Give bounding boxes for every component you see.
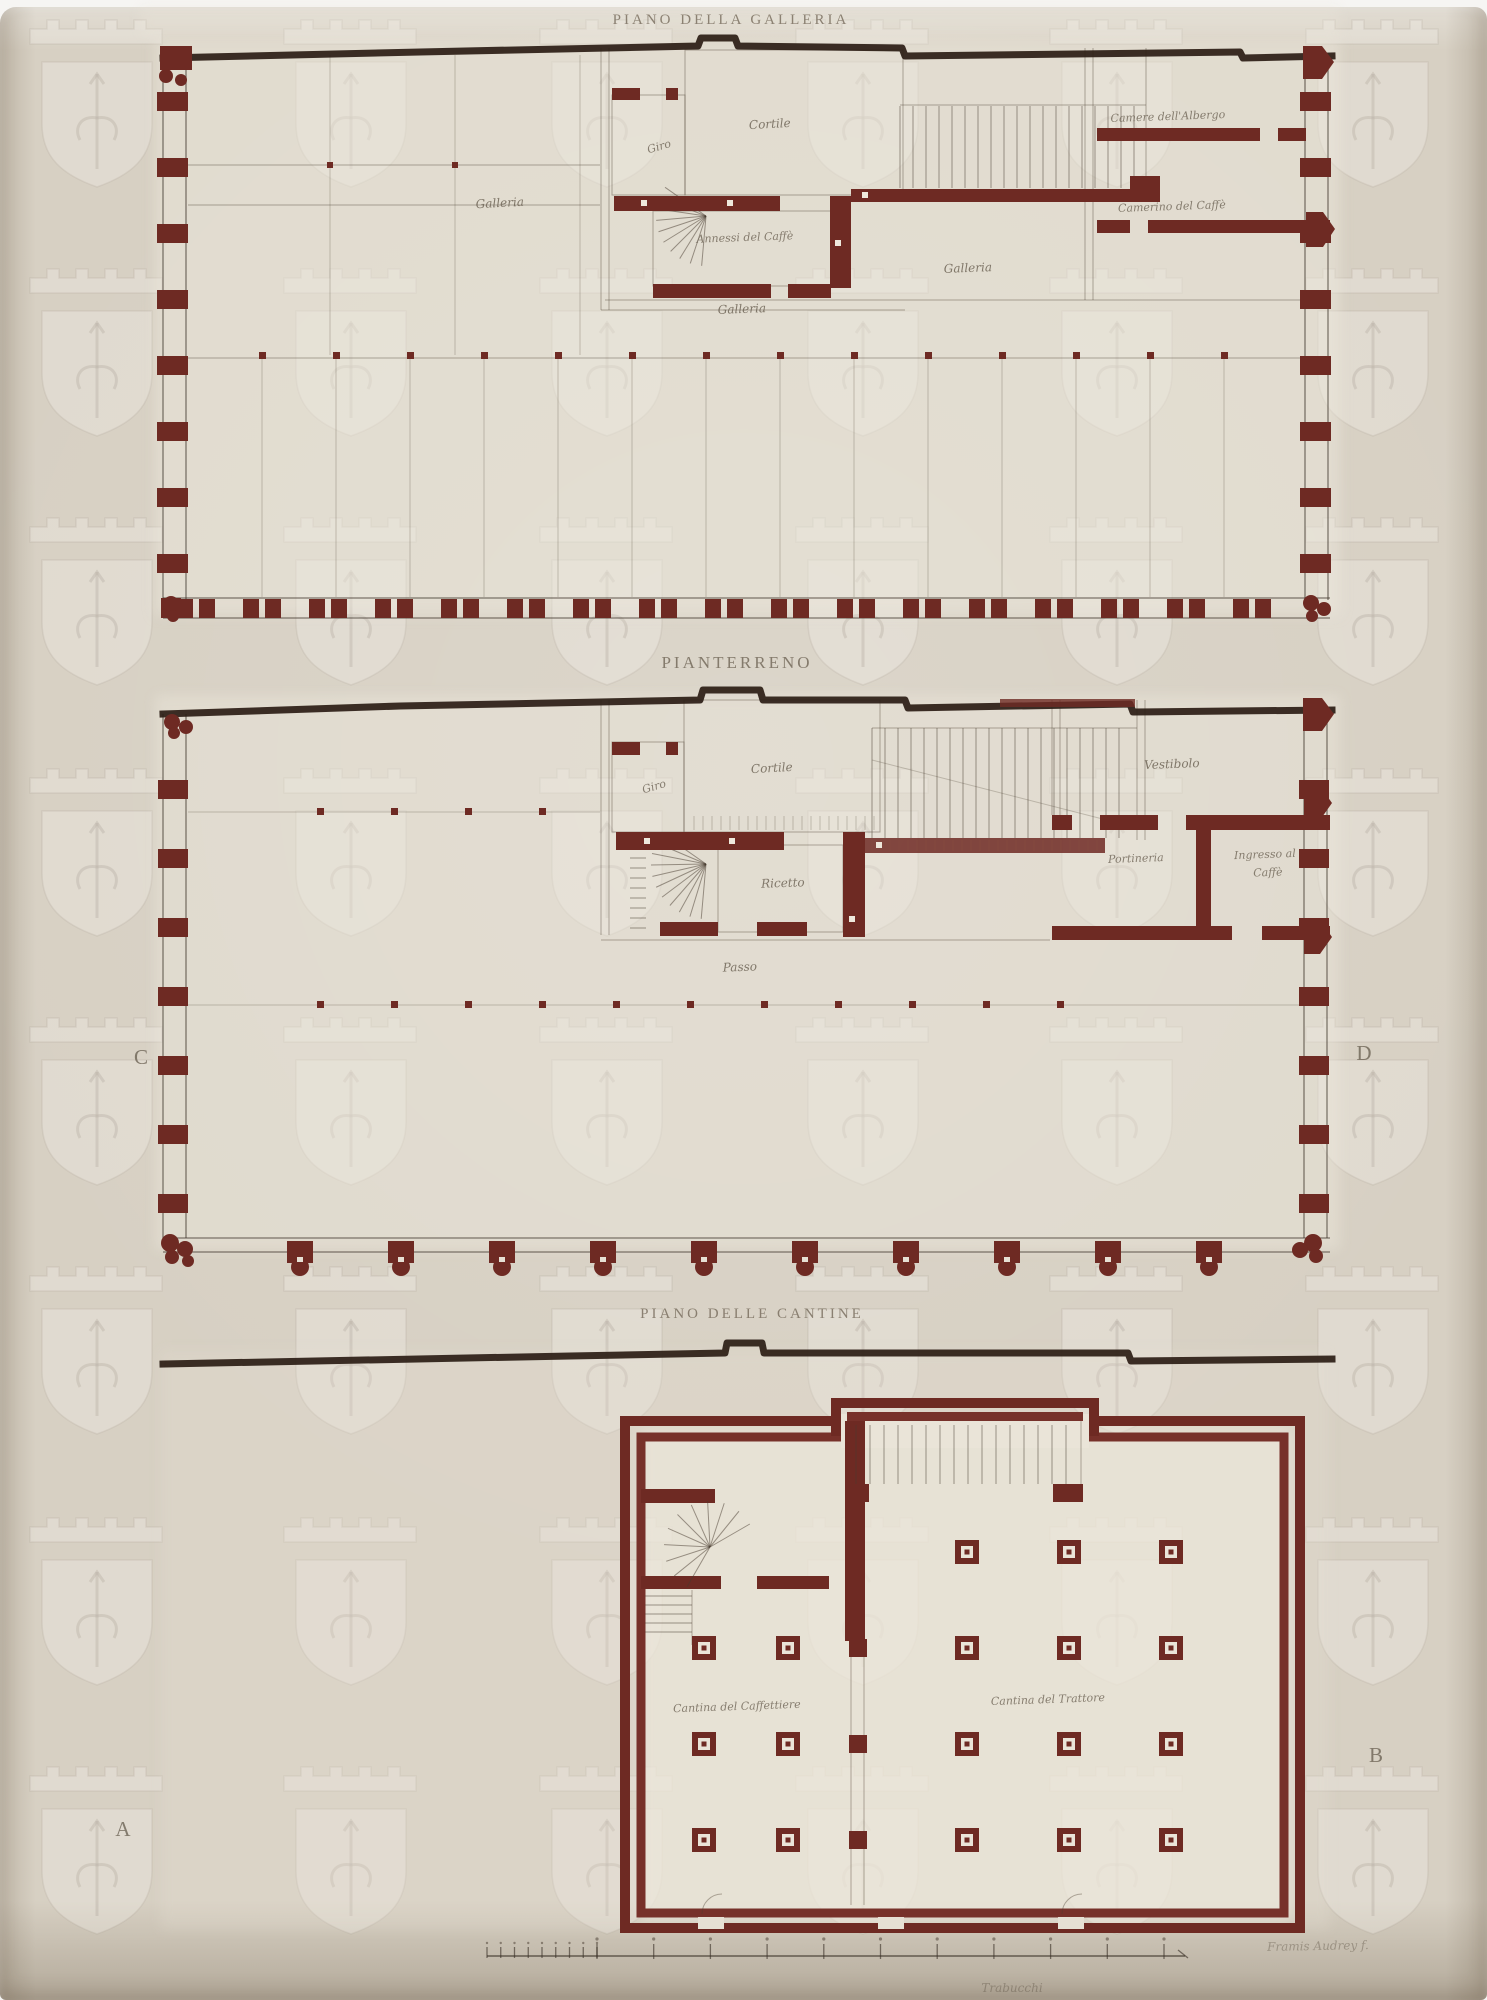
section-marker-d: D — [1356, 1041, 1371, 1065]
scanned-drawing-sheet: PIANO DELLA GALLERIA — [0, 0, 1487, 2000]
drawing-canvas: PIANO DELLA GALLERIA — [0, 0, 1487, 2000]
plan3-title: PIANO DELLE CANTINE — [640, 1306, 864, 1322]
room-label-ricetto: Ricetto — [760, 875, 805, 891]
signature: Framis Audrey f. — [1266, 1938, 1369, 1954]
scale-bar — [486, 1937, 1188, 1959]
room-label-galleria-center: Galleria — [718, 301, 767, 317]
room-label-cortile: Cortile — [749, 116, 791, 132]
section-marker-c: C — [134, 1045, 148, 1069]
room-label-galleria-right: Galleria — [944, 260, 993, 276]
section-marker-b: B — [1369, 1743, 1383, 1767]
plan2-title: PIANTERRENO — [661, 653, 812, 672]
room-label-portineria: Portineria — [1107, 851, 1164, 866]
room-label-cortile-pt: Cortile — [751, 760, 793, 776]
room-label-passo: Passo — [722, 959, 758, 974]
section-marker-a: A — [115, 1817, 131, 1841]
room-label-galleria-left: Galleria — [475, 195, 524, 212]
scale-unit-label: Trabucchi — [981, 1981, 1042, 1995]
room-label-ingresso-line2: Caffè — [1253, 865, 1283, 879]
room-label-vestibolo: Vestibolo — [1144, 756, 1200, 772]
plan1-title: PIANO DELLA GALLERIA — [613, 12, 850, 28]
room-label-ingresso-line1: Ingresso al — [1233, 847, 1297, 862]
